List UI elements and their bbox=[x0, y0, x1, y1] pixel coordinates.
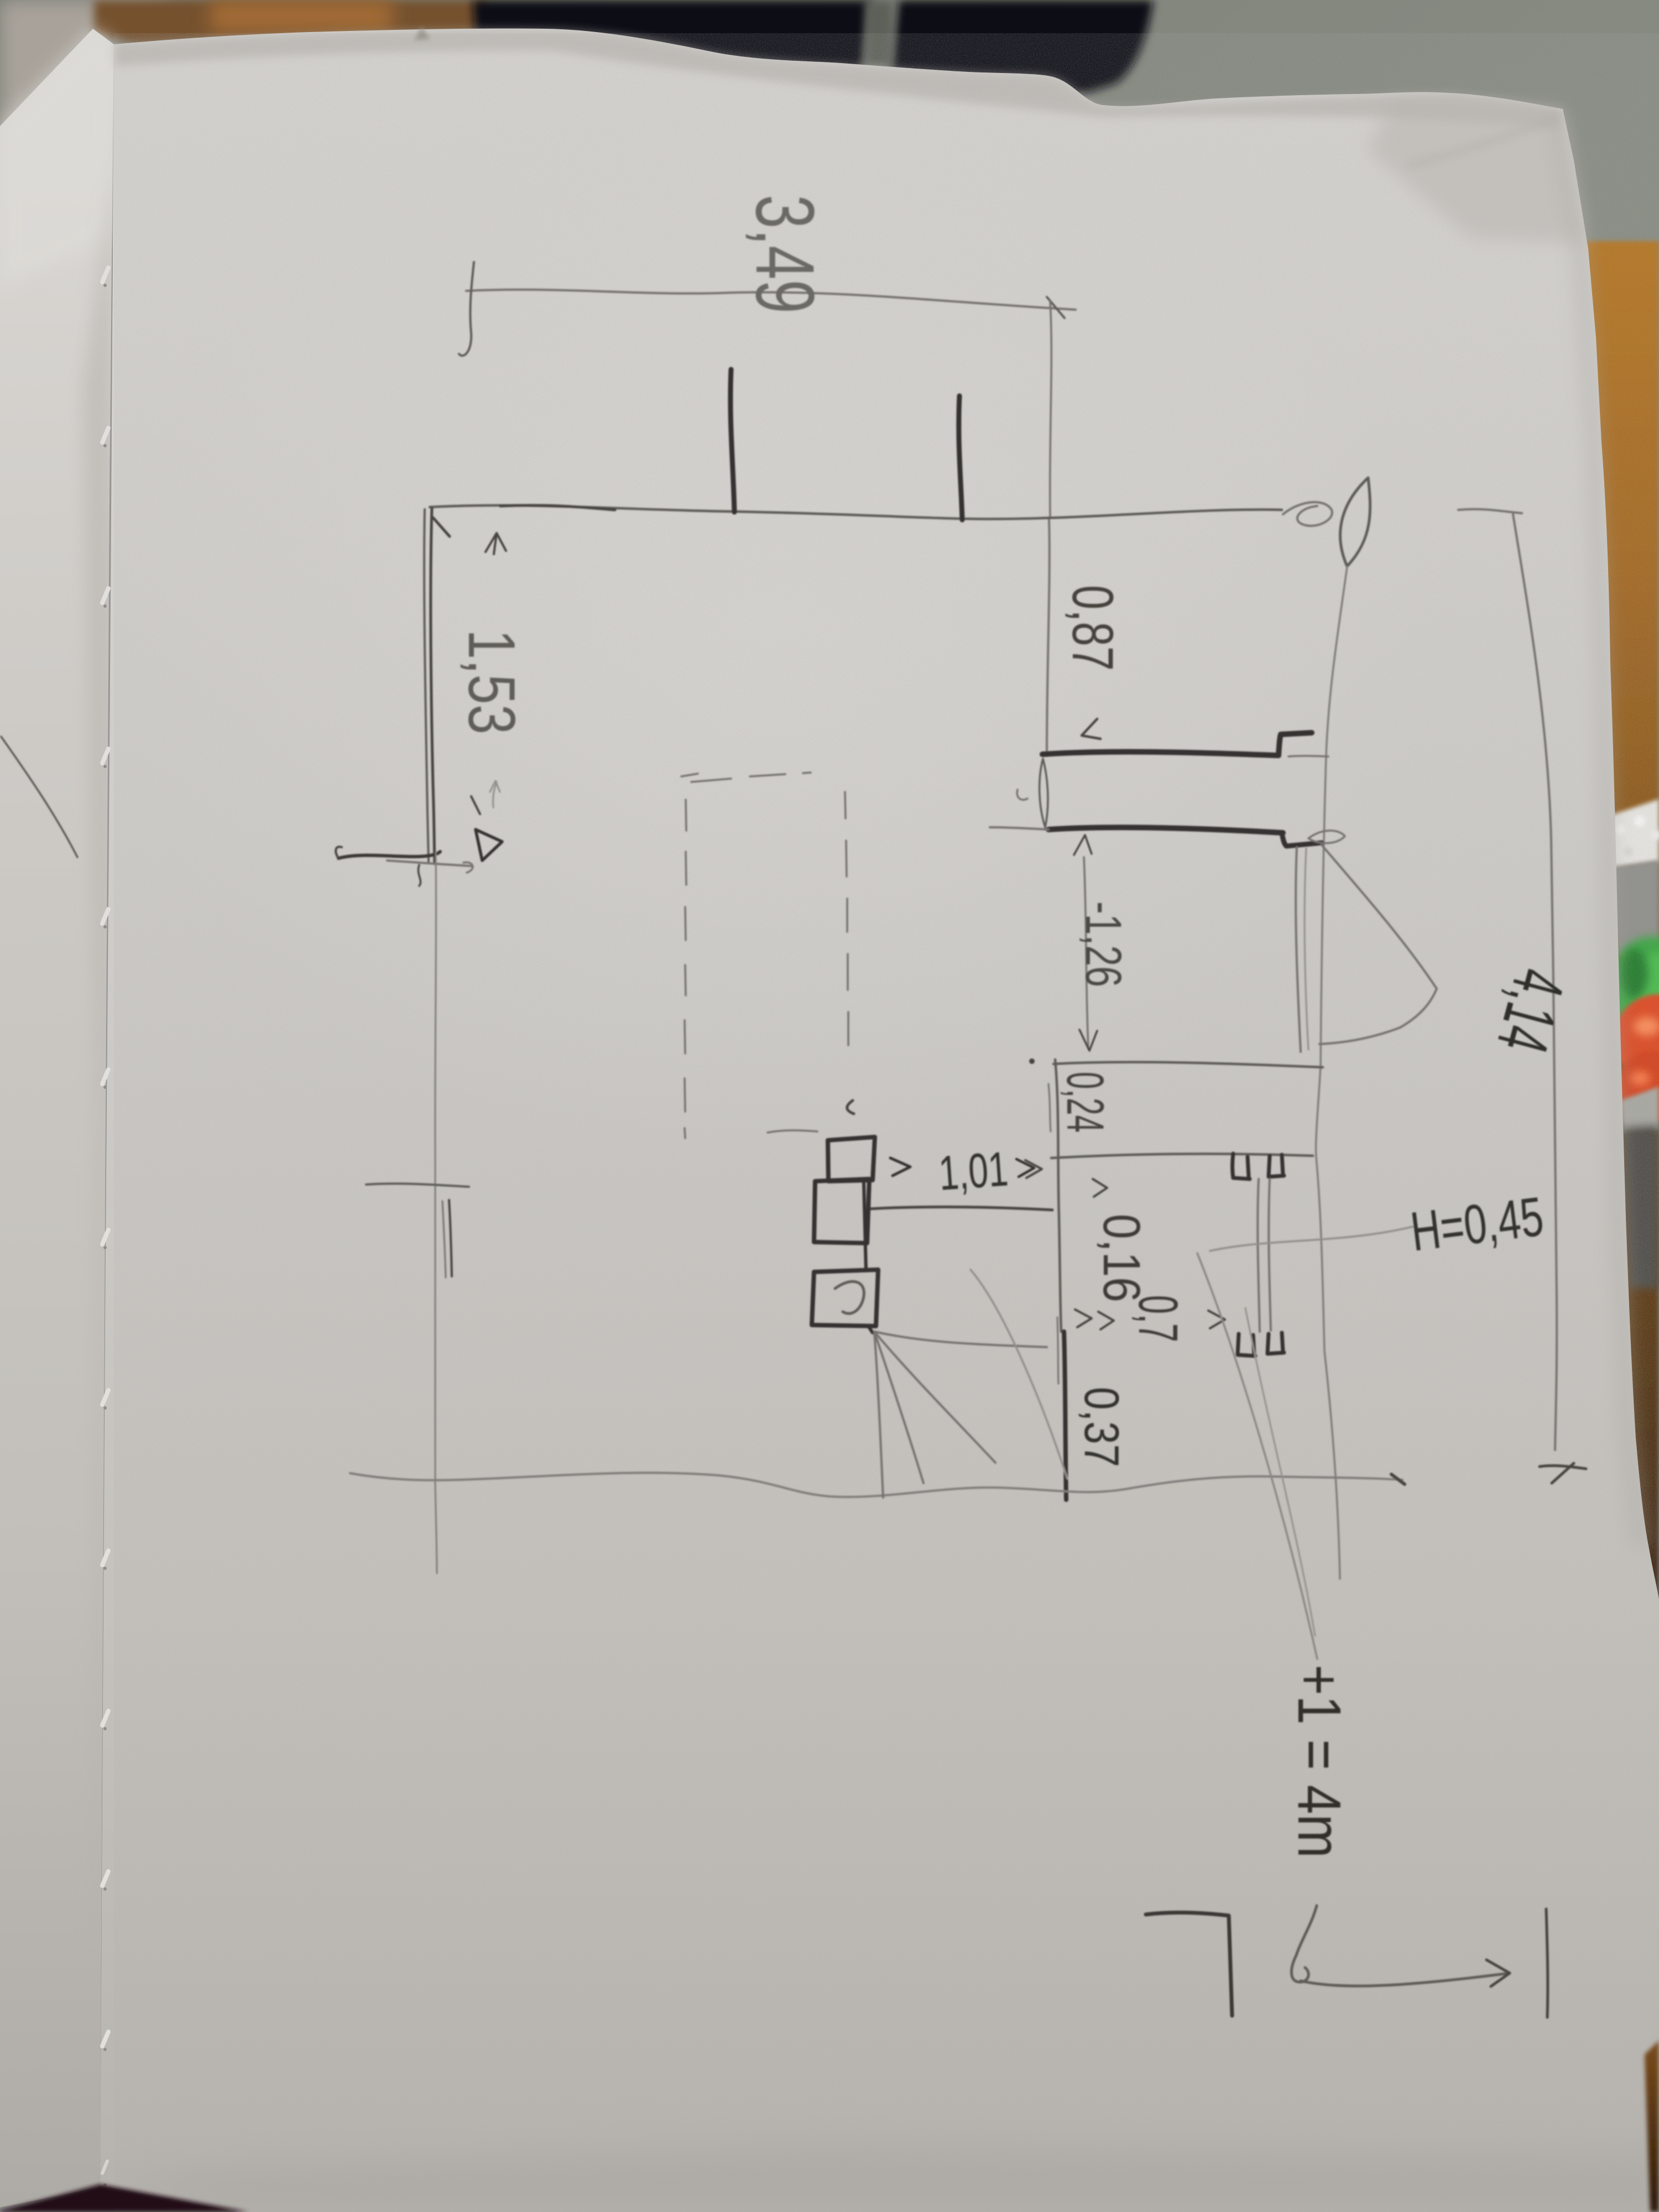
svg-text:0,7: 0,7 bbox=[1127, 1295, 1189, 1342]
svg-text:0,24: 0,24 bbox=[1056, 1072, 1114, 1133]
svg-text:-1,26: -1,26 bbox=[1075, 901, 1131, 987]
svg-text:+1 = 4m: +1 = 4m bbox=[1285, 1665, 1353, 1858]
svg-text:1,53: 1,53 bbox=[455, 629, 529, 734]
svg-text:3,49: 3,49 bbox=[739, 195, 832, 314]
svg-text:0,37: 0,37 bbox=[1074, 1387, 1129, 1467]
svg-text:1,01: 1,01 bbox=[937, 1141, 1010, 1200]
svg-text:0,87: 0,87 bbox=[1060, 585, 1125, 671]
svg-text:0,16: 0,16 bbox=[1092, 1214, 1151, 1302]
